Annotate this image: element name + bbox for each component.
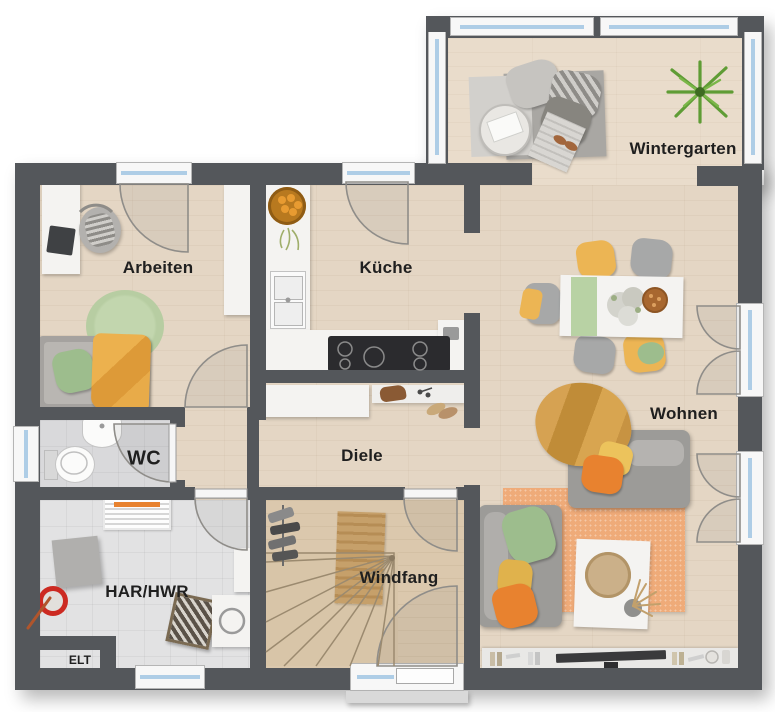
wall-windfang-top-nub [456,487,468,500]
dining-chair-gray-bottom [572,334,617,376]
doormat [334,511,385,605]
wc-sink [82,418,122,448]
room-label-har-hwr: HAR/HWR [105,582,189,602]
wardrobe [224,185,252,315]
sofa-top-cushion [628,440,684,466]
front-door-leaf [396,668,454,684]
wall-wc-east-nub-top [170,420,185,427]
wall-kueche-wohnen [464,183,480,233]
room-label-elt: ELT [69,653,91,667]
wintergarten-glass-left [428,30,446,164]
wall-har-windfang [250,500,266,668]
wintergarten-glass-right [744,30,762,164]
laptop [46,225,76,255]
wall-windfang-top [250,487,405,500]
window-kueche [342,162,415,184]
dining-chair-yellow-top [575,239,618,281]
orange-pillow [580,453,626,495]
cooktop [328,336,450,372]
towel-on-rack [114,502,160,507]
bucket [38,586,68,616]
porch-step [346,691,468,703]
wall-wc-east-nub-bottom [170,480,185,487]
window-arbeiten [116,162,192,184]
tray [585,552,631,598]
wall-elt-v [100,636,116,668]
room-label-windfang: Windfang [360,568,439,588]
wall-top [15,163,532,185]
room-label-kueche: Küche [360,258,413,278]
gray-box [52,536,103,589]
french-door-lower [736,451,764,545]
toilet-bowl [55,446,95,483]
wall-arbeiten-kueche [250,183,266,420]
wall-wc-har [40,487,195,500]
french-door-upper [736,303,764,397]
wintergarten-glass-top-right [600,17,738,36]
orange-blanket [91,333,152,411]
room-label-wintergarten: Wintergarten [629,139,736,159]
wall-arbeiten-bottom [40,407,185,420]
room-label-diele: Diele [341,446,383,466]
washing-machine [212,595,252,647]
wall-kueche-bottom [253,370,480,383]
dining-chair-gray-top [629,237,674,280]
floor-plan: Arbeiten Küche Wintergarten Wohnen WC Di… [0,0,775,712]
wintergarten-glass-top-left [450,17,594,36]
room-label-wohnen: Wohnen [650,404,718,424]
fruit-bowl [268,187,306,225]
window-wc [13,426,39,482]
room-label-arbeiten: Arbeiten [123,258,194,278]
wall-windfang-east [464,485,480,668]
sink-basin-top [274,276,303,300]
wall-right [738,182,762,690]
wintergarten-corner-post-right [742,16,764,32]
window-har [135,665,205,689]
sideboard [263,385,369,417]
sink-basin-bottom [274,302,303,326]
wintergarten-corner-post-left [426,16,448,32]
table-runner [571,277,597,336]
wall-diele-wohnen [464,313,480,428]
room-label-wc: WC [127,448,161,471]
